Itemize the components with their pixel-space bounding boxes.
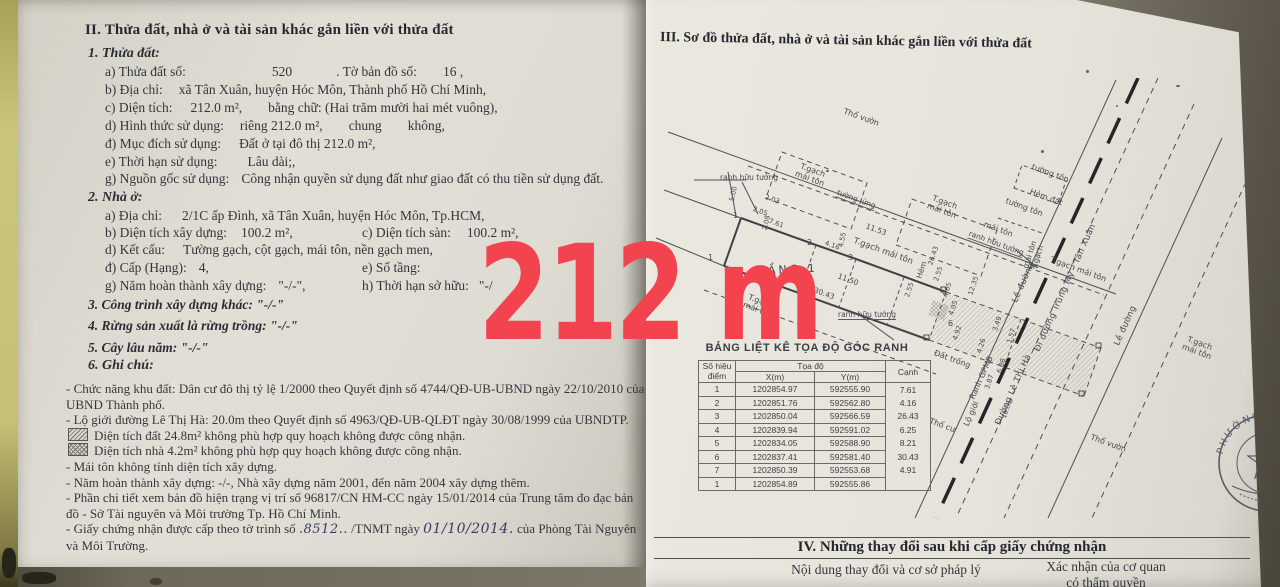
year-built-value: "-/-",: [278, 278, 305, 293]
land-origin-row: g) Nguồn gốc sử dụng:Công nhận quyền sử …: [105, 171, 603, 187]
land-area-label: c) Diện tích:: [105, 100, 172, 115]
note-map-reference: - Phần chi tiết xem bản đồ hiện trạng vị…: [66, 490, 648, 521]
use-form-private: riêng 212.0 m²,: [240, 118, 323, 133]
issuance-date-handwritten: 01/10/2014.: [423, 521, 514, 537]
label-ranh-3: ranh hữu tưởng: [838, 311, 896, 320]
floor-area-label: c) Diện tích sàn:: [362, 225, 451, 240]
scan-blotch: [150, 578, 162, 585]
scanned-land-certificate: II. Thửa đất, nhà ở và tài sản khác gắn …: [0, 0, 1280, 587]
label-ranh-1: ranh hữu tưởng: [720, 174, 778, 182]
build-area-value: 100.2 m²,: [241, 225, 293, 240]
structure-label: d) Kết cấu:: [105, 242, 165, 257]
seal-star-icon: [1248, 443, 1280, 478]
term-label: e) Thời hạn sử dụng:: [105, 154, 217, 169]
origin-value: Công nhận quyền sử dụng đất như giao đất…: [241, 171, 603, 186]
grade-label: đ) Cấp (Hạng):: [105, 260, 187, 275]
item6-notes-heading: 6. Ghi chú:: [88, 358, 154, 374]
notes-block: - Chức năng khu đất: Dân cư đô thị tỷ lệ…: [66, 381, 648, 554]
point-3: 3: [848, 254, 853, 263]
section-4-title: IV. Những thay đổi sau khi cấp giấy chứn…: [654, 539, 1250, 556]
note-land-not-recognized: Diện tích đất 24.8m² không phù hợp quy h…: [66, 428, 648, 444]
land-heading: 1. Thửa đất:: [88, 46, 160, 62]
coord-row: 21202851.76592562.804.16: [699, 396, 931, 410]
issuance-number-handwritten: .8512..: [299, 522, 348, 537]
official-seal: PHƯỜNG HÒA BÌNH: [1202, 398, 1280, 528]
land-parcel-row: a) Thửa đất số:520. Tờ bản đồ số:16 ,: [105, 64, 463, 80]
col-x: X(m): [736, 372, 815, 383]
note-zoning: - Chức năng khu đất: Dân cư đô thị tỷ lệ…: [66, 381, 648, 412]
col-y: Y(m): [815, 372, 886, 383]
grade-value: 4,: [199, 260, 209, 275]
map-sheet-label: . Tờ bản đồ số:: [336, 64, 417, 79]
land-parcel-label: a) Thửa đất số:: [105, 64, 186, 79]
scan-background-bottom: [18, 567, 648, 587]
note-house-not-recognized-text: Diện tích nhà 4.2m² không phù hợp quy ho…: [94, 443, 462, 458]
section-2-title: II. Thửa đất, nhà ở và tài sản khác gắn …: [85, 22, 454, 39]
section-4-col-left: Nội dung thay đổi và cơ sở pháp lý: [726, 562, 1046, 578]
note-road-boundary: - Lộ giới đường Lê Thị Hà: 20.0m theo Qu…: [66, 412, 648, 428]
item4-production-forest: 4. Rừng sản xuất là rừng trồng: "-/-": [88, 318, 298, 334]
note-house-not-recognized: Diện tích nhà 4.2m² không phù hợp quy ho…: [66, 443, 648, 459]
red-watermark-212m: 212 m: [478, 228, 820, 360]
svg-text:PHƯỜNG HÒA BÌNH: PHƯỜNG HÒA BÌNH: [1215, 410, 1280, 459]
house-address-value: 2/1C ấp Đình, xã Tân Xuân, huyện Hóc Môn…: [182, 208, 484, 223]
purpose-label: đ) Mục đích sử dụng:: [105, 136, 221, 151]
house-grade-row: đ) Cấp (Hạng):4,: [105, 260, 209, 276]
note-land-not-recognized-text: Diện tích đất 24.8m² không phù hợp quy h…: [94, 428, 465, 443]
house-address-label: a) Địa chỉ:: [105, 208, 162, 223]
issuance-pre: - Giấy chứng nhận được cấp theo tờ trình…: [66, 521, 296, 536]
tenure-label: h) Thời hạn sở hữu:: [362, 278, 469, 293]
land-area-value: 212.0 m²,: [190, 100, 242, 115]
coord-row: 61202837.41592581.4030.43: [699, 450, 931, 464]
use-form-shared-value: không,: [408, 118, 445, 133]
house-build-area-row: b) Diện tích xây dựng:100.2 m²,: [105, 225, 293, 241]
land-address-row: b) Địa chỉ:xã Tân Xuân, huyện Hóc Môn, T…: [105, 82, 486, 98]
note-construction-years: - Năm hoàn thành xây dựng: -/-, Nhà xây …: [66, 475, 648, 491]
use-form-label: d) Hình thức sử dụng:: [105, 118, 224, 133]
use-form-shared-label: chung: [349, 118, 382, 133]
note-roof: - Mái tôn không tính diện tích xây dựng.: [66, 459, 648, 475]
house-structure-row: d) Kết cấu:Tường gạch, cột gạch, mái tôn…: [105, 242, 433, 258]
build-area-label: b) Diện tích xây dựng:: [105, 225, 227, 240]
house-storeys-row: e) Số tầng:: [362, 260, 421, 276]
land-term-row: e) Thời hạn sử dụng:Lâu dài;,: [105, 154, 295, 170]
coord-row: 41202839.94592591.026.25: [699, 423, 931, 437]
land-parcel-number: 520: [272, 64, 292, 79]
item5-perennial-trees: 5. Cây lâu năm: "-/-": [88, 340, 208, 356]
house-address-row: a) Địa chỉ:2/1C ấp Đình, xã Tân Xuân, hu…: [105, 208, 484, 224]
item3-other-constructions: 3. Công trình xây dựng khác: "-/-": [88, 297, 284, 313]
scan-blotch: [2, 548, 16, 578]
section-4-col-right-line2: có thẩm quyền: [1026, 575, 1186, 587]
coord-row: 51202834.05592588.908.21: [699, 437, 931, 451]
note-issuance: - Giấy chứng nhận được cấp theo tờ trình…: [66, 521, 648, 553]
section-4-rule-top: [654, 537, 1250, 538]
land-address-value: xã Tân Xuân, huyện Hóc Môn, Thành phố Hồ…: [179, 82, 486, 97]
section-3-title: III. Sơ đồ thửa đất, nhà ở và tài sản kh…: [660, 30, 1032, 52]
issuance-mid: /TNMT ngày: [351, 521, 420, 536]
coord-row: 11202854.97592555.907.61: [699, 383, 931, 397]
issuance-post: của Phòng Tài Nguyên: [517, 521, 636, 536]
issuance-tail: và Môi Trường.: [66, 538, 148, 553]
origin-label: g) Nguồn gốc sử dụng:: [105, 171, 229, 186]
coord-row: 31202850.04592566.5926.43: [699, 410, 931, 424]
land-address-label: b) Địa chỉ:: [105, 82, 163, 97]
seal-text: PHƯỜNG HÒA BÌNH: [1215, 410, 1280, 459]
crosshatch-legend-icon: [68, 443, 88, 456]
film-strip-edge: [0, 0, 18, 587]
structure-value: Tường gạch, cột gạch, mái tôn, nền gạch …: [183, 242, 433, 257]
land-area-row: c) Diện tích:212.0 m²,bằng chữ: (Hai tră…: [105, 100, 498, 116]
section-4-col-right-line1: Xác nhận của cơ quan: [1026, 559, 1186, 575]
map-sheet-number: 16 ,: [443, 64, 463, 79]
year-built-label: g) Năm hoàn thành xây dựng:: [105, 278, 266, 293]
coord-table: Số hiệu điểm Tọa độ Cạnh X(m) Y(m) 11202…: [698, 360, 931, 491]
land-area-words: bằng chữ: (Hai trăm mười hai mét vuông),: [268, 100, 497, 115]
land-use-form-row: d) Hình thức sử dụng:riêng 212.0 m²,chun…: [105, 118, 445, 134]
hatch-legend-icon: [68, 428, 88, 441]
col-edge: Cạnh: [886, 361, 931, 383]
scan-blotch: [22, 572, 56, 584]
purpose-value: Đất ở tại đô thị 212.0 m²,: [239, 136, 375, 151]
house-tenure-row: h) Thời hạn sở hữu:"-/: [362, 278, 493, 294]
coord-row: 71202850.39592553.684.91: [699, 464, 931, 478]
land-purpose-row: đ) Mục đích sử dụng:Đất ở tại đô thị 212…: [105, 136, 376, 152]
point-6: 6: [948, 320, 953, 329]
storeys-label: e) Số tầng:: [362, 260, 421, 275]
house-year-row: g) Năm hoàn thành xây dựng:"-/-",: [105, 278, 306, 294]
coord-row: 11202854.89592555.86: [699, 477, 931, 491]
term-value: Lâu dài;,: [247, 154, 295, 169]
house-heading: 2. Nhà ở:: [88, 190, 143, 206]
